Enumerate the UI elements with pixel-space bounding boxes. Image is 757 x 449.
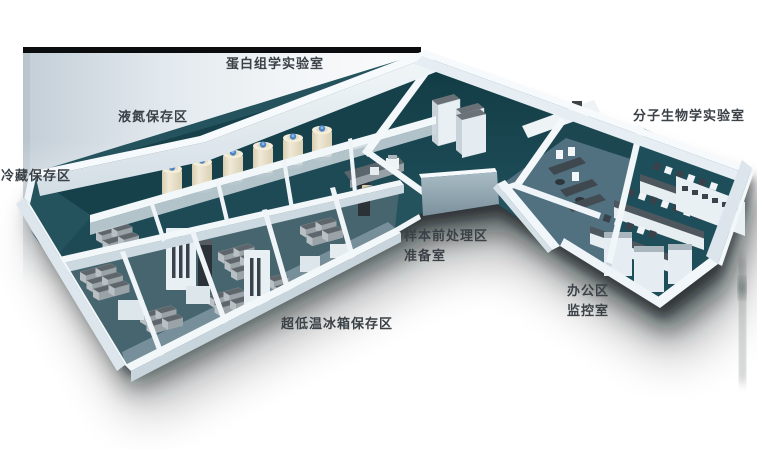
lab-floorplan-scene: 蛋白组学实验室 液氮保存区 冷藏保存区 分子生物学实验室 样本前处理区 准备室 … [0,0,757,449]
label-cold-storage-area: 冷藏保存区 [1,170,71,184]
label-proteomics-lab: 蛋白组学实验室 [226,58,324,72]
label-monitoring-room: 监控室 [567,305,609,319]
floorplan-3d-render [0,0,757,449]
label-ult-freezer-area: 超低温冰箱保存区 [281,318,393,332]
label-prep-room: 准备室 [404,250,446,264]
label-office-area: 办公区 [567,285,609,299]
label-molecular-biology-lab: 分子生物学实验室 [633,110,745,124]
label-liquid-nitrogen-area: 液氮保存区 [118,111,188,125]
label-sample-pretreatment: 样本前处理区 [404,230,488,244]
